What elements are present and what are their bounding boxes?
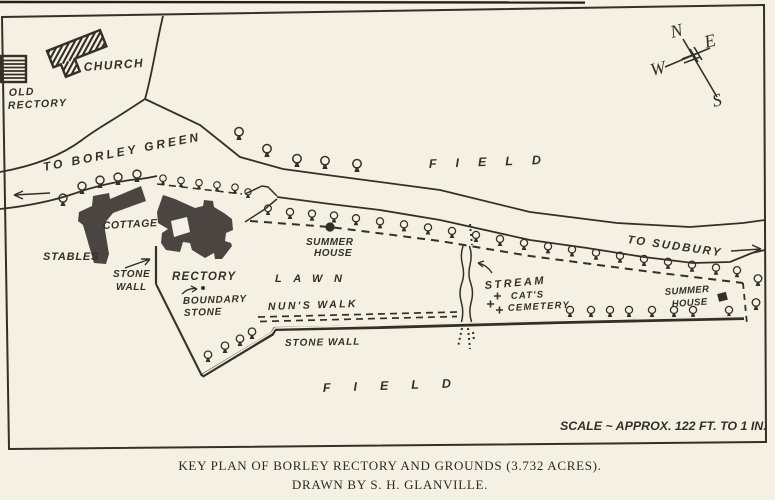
svg-text:CAT'S: CAT'S — [511, 289, 545, 302]
svg-text:SUMMER: SUMMER — [306, 237, 354, 248]
svg-text:BOUNDARY: BOUNDARY — [183, 294, 248, 307]
svg-text:SCALE ~ APPROX. 122 FT. TO 1 I: SCALE ~ APPROX. 122 FT. TO 1 IN. — [560, 419, 767, 433]
svg-text:LAWN: LAWN — [275, 273, 353, 285]
svg-text:RECTORY: RECTORY — [172, 271, 236, 283]
svg-text:DRAWN BY S. H. GLANVILLE.: DRAWN BY S. H. GLANVILLE. — [292, 477, 488, 492]
svg-text:HOUSE: HOUSE — [314, 248, 352, 259]
svg-text:OLD: OLD — [9, 86, 35, 99]
svg-text:STONE WALL: STONE WALL — [285, 337, 361, 349]
svg-text:STONE: STONE — [113, 269, 150, 280]
svg-text:KEY PLAN OF BORLEY RECTORY AND: KEY PLAN OF BORLEY RECTORY AND GROUNDS (… — [178, 458, 601, 473]
svg-text:WALL: WALL — [116, 282, 147, 293]
svg-text:STABLES: STABLES — [43, 251, 99, 263]
svg-text:STONE: STONE — [184, 307, 223, 319]
